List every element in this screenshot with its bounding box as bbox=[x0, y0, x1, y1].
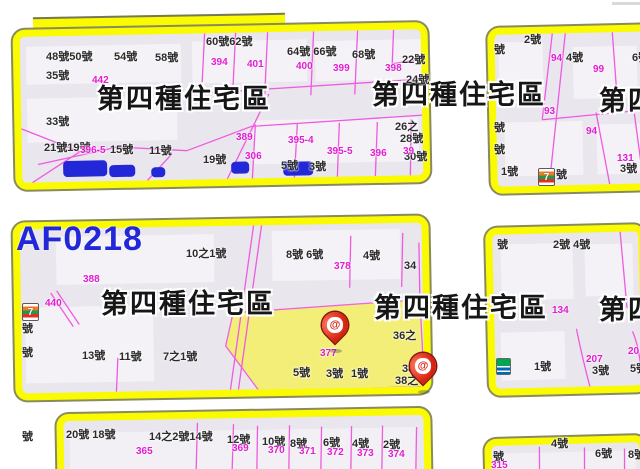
parcel-lines-b bbox=[494, 31, 640, 187]
parcel-lines-f bbox=[491, 442, 640, 469]
pin-logo-icon: @ bbox=[415, 358, 431, 374]
map-block-top-right[interactable] bbox=[487, 24, 640, 194]
map-block-bottom-right[interactable] bbox=[484, 435, 640, 469]
seven-eleven-icon[interactable]: 7 bbox=[538, 168, 555, 186]
seven-eleven-icon[interactable]: 7 bbox=[22, 303, 39, 321]
familymart-icon[interactable] bbox=[496, 358, 511, 375]
map-block-middle-left[interactable] bbox=[12, 215, 431, 400]
parcel-lines-c bbox=[20, 223, 425, 394]
street-name-blue-text-fragment bbox=[151, 167, 165, 177]
street-name-blue-text-fragment bbox=[231, 161, 249, 173]
street-name-blue-text-fragment bbox=[283, 161, 313, 176]
map-edge-line bbox=[612, 2, 640, 5]
map-block-bottom-left[interactable] bbox=[56, 408, 431, 469]
highlighted-parcel[interactable] bbox=[225, 299, 424, 391]
pin-logo-icon: @ bbox=[327, 317, 343, 333]
parcel-lines-d bbox=[492, 231, 640, 389]
parcel-lines-e bbox=[63, 415, 424, 469]
house-number-label: 號 bbox=[22, 432, 33, 443]
map-block-top-left[interactable] bbox=[13, 22, 431, 190]
street-name-blue-text-fragment bbox=[109, 165, 135, 177]
map-canvas[interactable]: 第四種住宅區第四種住宅區第四種第四種住宅區第四種住宅區第四種AF021848號5… bbox=[0, 0, 640, 469]
street-name-blue-text-fragment bbox=[63, 160, 107, 177]
